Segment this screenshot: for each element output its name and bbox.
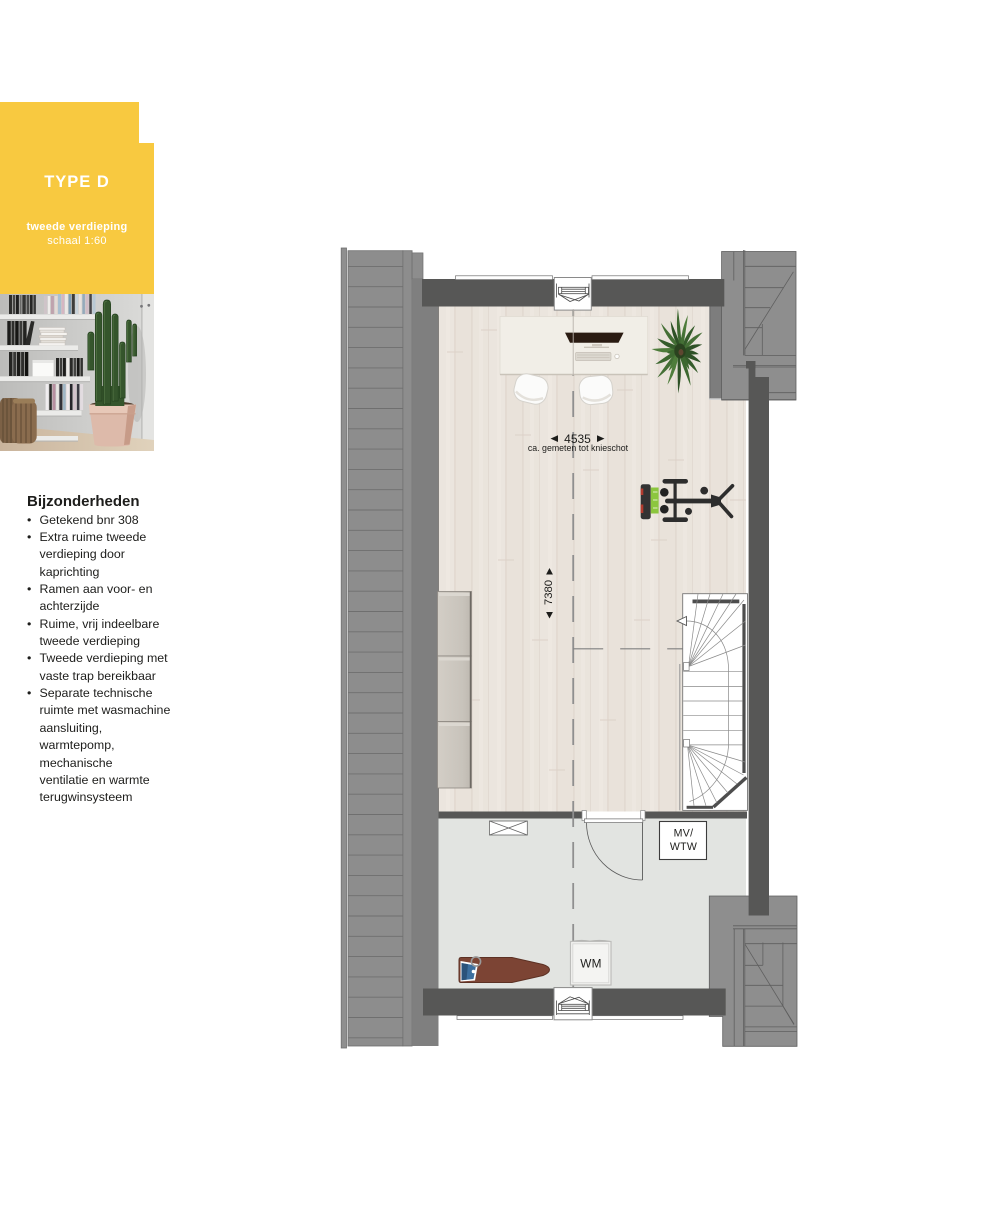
svg-text:WTW: WTW bbox=[670, 841, 697, 853]
svg-text:MV/: MV/ bbox=[674, 828, 694, 840]
svg-text:7380: 7380 bbox=[543, 580, 555, 605]
svg-text:WM: WM bbox=[580, 957, 602, 971]
svg-text:ca. gemeten tot knieschot: ca. gemeten tot knieschot bbox=[528, 443, 629, 453]
